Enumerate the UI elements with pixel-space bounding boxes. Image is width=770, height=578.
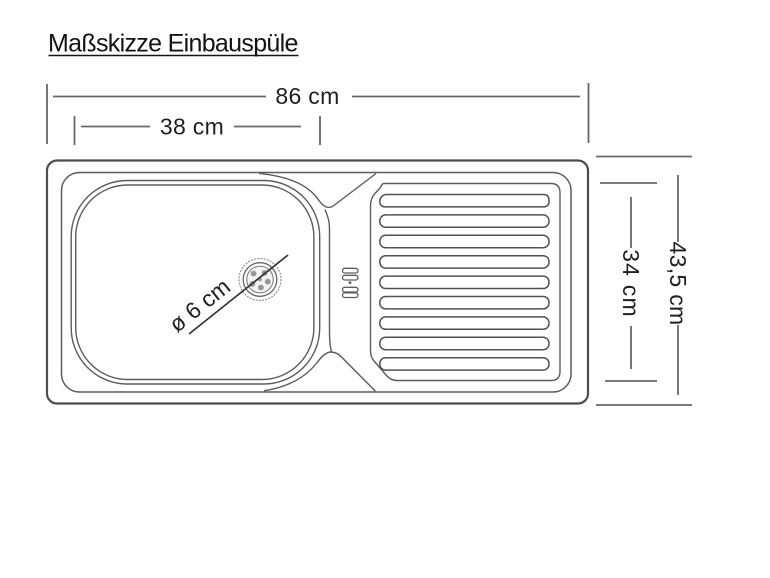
svg-text:86 cm: 86 cm: [275, 83, 339, 109]
svg-text:34 cm: 34 cm: [618, 249, 644, 318]
svg-text:43,5 cm: 43,5 cm: [665, 242, 691, 326]
svg-text:Maßskizze Einbauspüle: Maßskizze Einbauspüle: [48, 30, 298, 58]
svg-text:38 cm: 38 cm: [160, 114, 224, 140]
